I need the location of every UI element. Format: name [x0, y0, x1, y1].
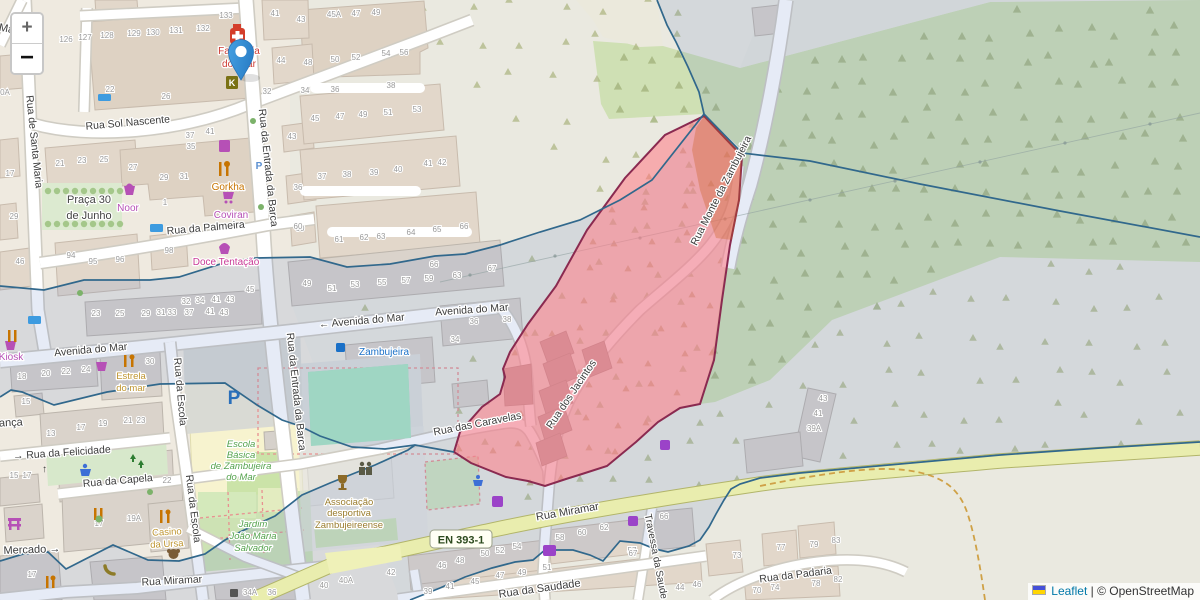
svg-text:83: 83: [832, 536, 841, 545]
svg-text:Associação: Associação: [325, 497, 374, 508]
svg-text:66: 66: [460, 222, 469, 231]
svg-text:79: 79: [810, 540, 819, 549]
svg-text:Estrela: Estrela: [116, 371, 146, 382]
svg-text:55: 55: [378, 278, 387, 287]
svg-text:45: 45: [246, 285, 255, 294]
svg-text:47: 47: [336, 112, 345, 121]
svg-text:41: 41: [212, 295, 221, 304]
svg-text:Mercado →: Mercado →: [3, 543, 60, 557]
svg-text:23: 23: [137, 416, 146, 425]
svg-text:51: 51: [328, 284, 337, 293]
svg-text:↑: ↑: [42, 464, 47, 475]
svg-text:13: 13: [47, 429, 56, 438]
svg-text:15: 15: [22, 397, 31, 406]
svg-text:82: 82: [834, 575, 843, 584]
svg-text:41: 41: [271, 9, 280, 18]
svg-text:de Junho: de Junho: [66, 210, 111, 222]
svg-text:42: 42: [387, 568, 396, 577]
svg-text:Coviran: Coviran: [214, 210, 248, 221]
svg-text:40A: 40A: [339, 576, 354, 585]
svg-text:34: 34: [196, 296, 205, 305]
svg-text:67: 67: [488, 264, 497, 273]
svg-text:59: 59: [425, 274, 434, 283]
svg-text:Jardim: Jardim: [238, 519, 268, 530]
svg-text:36: 36: [470, 317, 479, 326]
svg-text:54: 54: [513, 542, 522, 551]
svg-text:46: 46: [693, 580, 702, 589]
svg-text:47: 47: [352, 9, 361, 18]
svg-text:46: 46: [438, 561, 447, 570]
svg-text:17: 17: [77, 423, 86, 432]
svg-text:P: P: [256, 161, 263, 172]
svg-text:49: 49: [303, 279, 312, 288]
svg-text:41: 41: [814, 409, 823, 418]
svg-text:45A: 45A: [327, 10, 342, 19]
svg-text:27: 27: [129, 163, 138, 172]
svg-text:17: 17: [28, 570, 37, 579]
svg-text:22: 22: [163, 476, 172, 485]
svg-text:38: 38: [387, 81, 396, 90]
svg-text:44: 44: [676, 583, 685, 592]
svg-text:36: 36: [294, 183, 303, 192]
svg-text:41: 41: [424, 159, 433, 168]
svg-text:P: P: [228, 388, 241, 409]
svg-text:73: 73: [733, 551, 742, 560]
svg-text:64: 64: [407, 228, 416, 237]
svg-text:31: 31: [157, 308, 166, 317]
svg-text:96: 96: [116, 255, 125, 264]
svg-text:do Mar: do Mar: [226, 472, 256, 483]
svg-text:47: 47: [496, 571, 505, 580]
svg-text:21: 21: [124, 416, 133, 425]
svg-text:1: 1: [163, 198, 168, 207]
svg-text:126: 126: [59, 35, 73, 44]
svg-text:17: 17: [6, 169, 15, 178]
svg-text:77: 77: [777, 543, 786, 552]
svg-text:34: 34: [301, 86, 310, 95]
svg-text:43: 43: [288, 132, 297, 141]
svg-text:56: 56: [400, 48, 409, 57]
svg-text:53: 53: [351, 280, 360, 289]
svg-text:49: 49: [372, 8, 381, 17]
svg-text:45: 45: [311, 114, 320, 123]
svg-text:22: 22: [106, 85, 115, 94]
svg-text:29: 29: [142, 309, 151, 318]
svg-text:62: 62: [600, 523, 609, 532]
svg-text:38: 38: [503, 315, 512, 324]
svg-text:Praça 30: Praça 30: [67, 194, 111, 206]
svg-text:35: 35: [187, 142, 196, 151]
svg-text:51: 51: [384, 108, 393, 117]
svg-text:36: 36: [268, 588, 277, 597]
svg-text:23: 23: [92, 309, 101, 318]
svg-text:38: 38: [343, 170, 352, 179]
svg-text:32: 32: [182, 297, 191, 306]
svg-text:41: 41: [446, 582, 455, 591]
svg-text:57: 57: [402, 276, 411, 285]
svg-text:39: 39: [370, 168, 379, 177]
svg-text:34: 34: [451, 335, 460, 344]
svg-text:39A: 39A: [807, 424, 822, 433]
svg-text:61: 61: [335, 235, 344, 244]
svg-text:22: 22: [62, 367, 71, 376]
svg-text:60: 60: [578, 528, 587, 537]
svg-text:42: 42: [438, 158, 447, 167]
svg-text:54: 54: [382, 49, 391, 58]
svg-text:43: 43: [297, 15, 306, 24]
svg-text:127: 127: [78, 33, 92, 42]
svg-text:60: 60: [294, 222, 303, 231]
svg-text:52: 52: [496, 546, 505, 555]
svg-text:98: 98: [165, 246, 174, 255]
svg-text:0A: 0A: [0, 88, 10, 97]
svg-text:32: 32: [263, 87, 272, 96]
svg-text:do mar: do mar: [116, 383, 146, 394]
svg-text:62: 62: [360, 233, 369, 242]
svg-text:130: 130: [146, 28, 160, 37]
svg-text:Zambujeira: Zambujeira: [359, 347, 409, 358]
svg-text:21: 21: [56, 159, 65, 168]
svg-text:Escola: Escola: [227, 439, 256, 450]
svg-text:63: 63: [453, 271, 462, 280]
svg-text:33: 33: [168, 308, 177, 317]
svg-text:65: 65: [433, 225, 442, 234]
svg-text:25: 25: [116, 309, 125, 318]
svg-text:67: 67: [629, 549, 638, 558]
svg-text:Doce Tentação: Doce Tentação: [193, 257, 260, 268]
svg-text:26: 26: [162, 92, 171, 101]
svg-text:40: 40: [394, 165, 403, 174]
svg-text:João Maria: João Maria: [229, 531, 277, 542]
svg-text:41: 41: [206, 307, 215, 316]
svg-text:70: 70: [753, 586, 762, 595]
svg-text:37: 37: [186, 131, 195, 140]
svg-text:132: 132: [196, 24, 210, 33]
svg-text:29: 29: [160, 173, 169, 182]
svg-text:133: 133: [219, 11, 233, 20]
svg-text:41: 41: [206, 127, 215, 136]
svg-text:128: 128: [100, 31, 114, 40]
svg-text:46: 46: [16, 257, 25, 266]
svg-text:19: 19: [99, 419, 108, 428]
svg-text:30: 30: [146, 357, 155, 366]
svg-text:94: 94: [67, 251, 76, 260]
svg-text:43: 43: [220, 308, 229, 317]
svg-text:20: 20: [42, 369, 51, 378]
svg-text:de Zambujeira: de Zambujeira: [211, 461, 272, 472]
svg-text:19A: 19A: [127, 514, 142, 523]
svg-text:31: 31: [180, 172, 189, 181]
svg-text:EN 393-1: EN 393-1: [438, 535, 484, 547]
svg-text:52: 52: [352, 53, 361, 62]
svg-text:40: 40: [320, 581, 329, 590]
svg-text:48: 48: [456, 556, 465, 565]
svg-text:15: 15: [10, 471, 19, 480]
svg-text:Casino: Casino: [152, 526, 182, 539]
svg-text:45: 45: [471, 577, 480, 586]
svg-text:58: 58: [556, 533, 565, 542]
svg-text:131: 131: [169, 26, 183, 35]
svg-text:Básica: Básica: [227, 450, 256, 461]
svg-text:23: 23: [78, 156, 87, 165]
svg-text:74: 74: [771, 583, 780, 592]
svg-text:Salvador: Salvador: [234, 543, 272, 554]
svg-text:Zambujeireense: Zambujeireense: [315, 520, 383, 531]
svg-text:37: 37: [185, 308, 194, 317]
svg-text:50: 50: [481, 549, 490, 558]
svg-text:43: 43: [819, 394, 828, 403]
svg-text:43: 43: [226, 295, 235, 304]
svg-text:36: 36: [331, 85, 340, 94]
svg-text:37: 37: [318, 172, 327, 181]
svg-text:49: 49: [518, 568, 527, 577]
svg-text:Gorkha: Gorkha: [212, 182, 245, 193]
svg-text:18: 18: [18, 372, 27, 381]
svg-text:24: 24: [82, 365, 91, 374]
svg-text:78: 78: [812, 579, 821, 588]
svg-text:desportiva: desportiva: [327, 508, 372, 519]
svg-text:Kiosk: Kiosk: [0, 352, 24, 363]
svg-text:44: 44: [277, 56, 286, 65]
svg-text:34A: 34A: [243, 588, 258, 597]
svg-text:29: 29: [10, 212, 19, 221]
svg-text:25: 25: [100, 155, 109, 164]
svg-text:ança: ança: [0, 416, 24, 429]
svg-text:95: 95: [89, 257, 98, 266]
svg-text:51: 51: [543, 563, 552, 572]
svg-text:17: 17: [23, 471, 32, 480]
svg-text:50: 50: [331, 55, 340, 64]
svg-text:Noor: Noor: [117, 203, 139, 214]
svg-text:48: 48: [304, 58, 313, 67]
svg-text:39: 39: [424, 587, 433, 596]
svg-text:129: 129: [127, 29, 141, 38]
svg-text:66: 66: [430, 260, 439, 269]
svg-text:K: K: [229, 78, 236, 88]
svg-text:da Ursa: da Ursa: [150, 538, 185, 551]
svg-text:66: 66: [660, 512, 669, 521]
svg-text:49: 49: [359, 110, 368, 119]
svg-text:53: 53: [413, 105, 422, 114]
svg-text:63: 63: [377, 232, 386, 241]
